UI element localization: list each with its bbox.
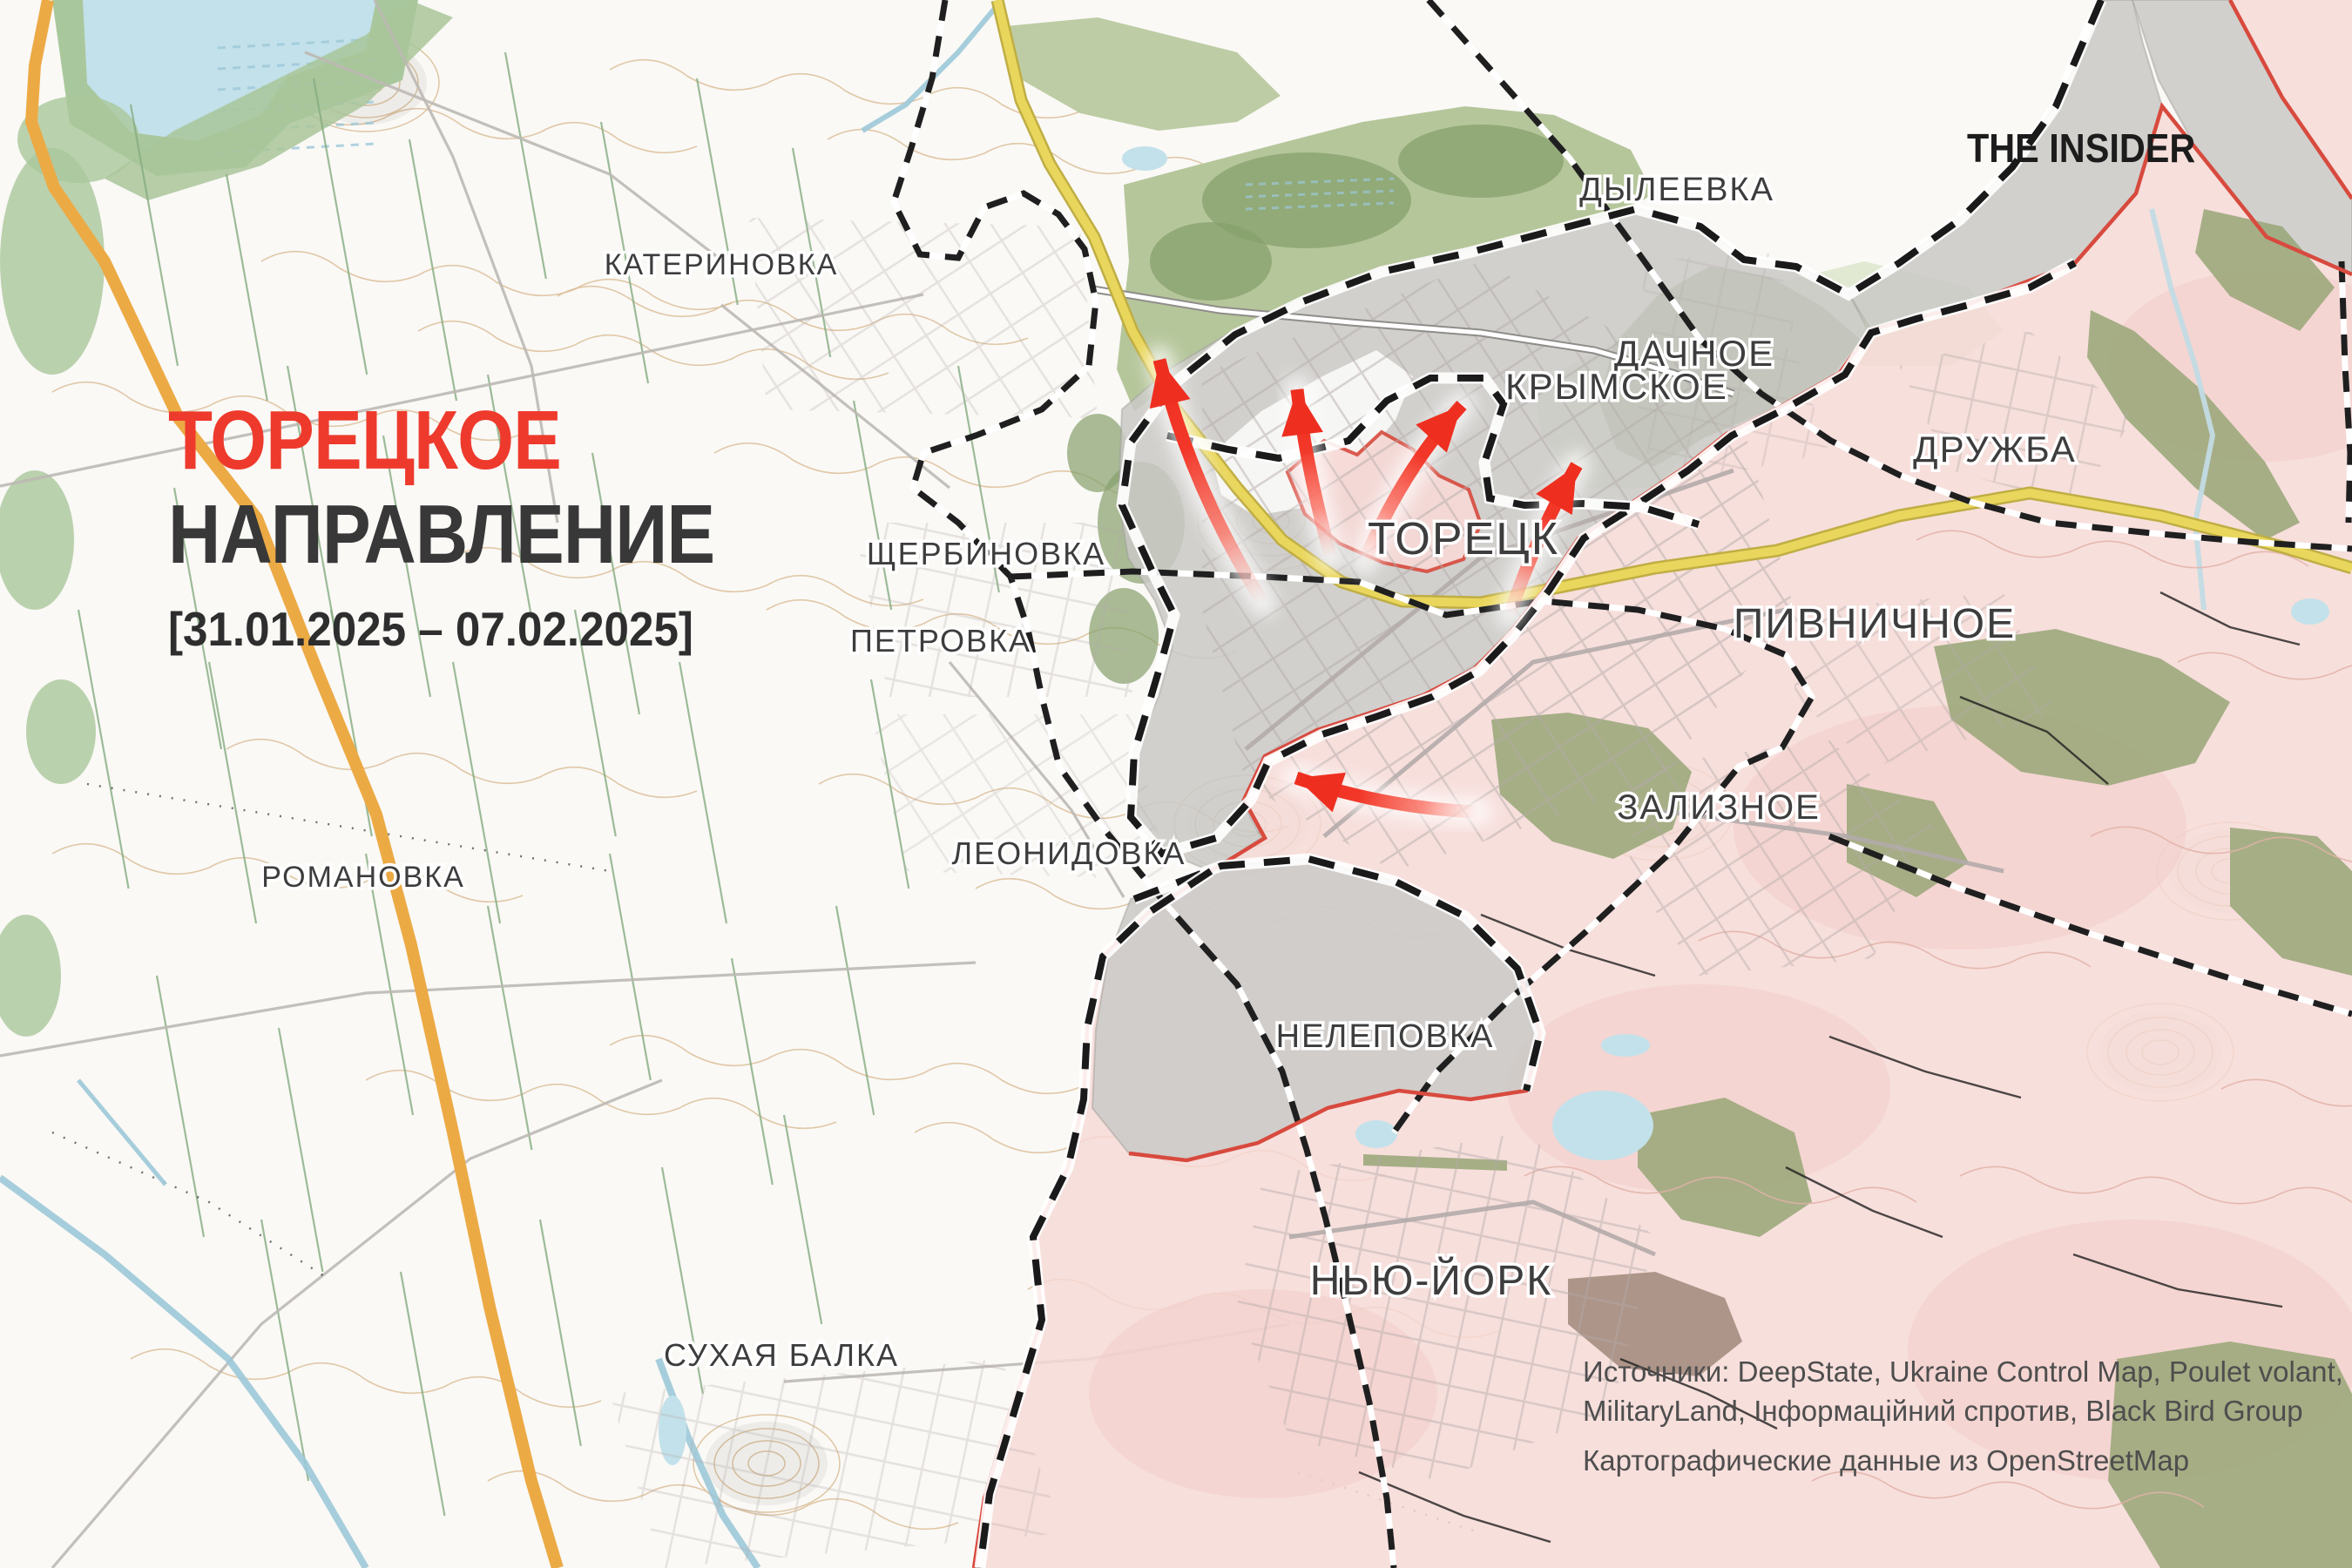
map-label-zaliznoe: ЗАЛИЗНОЕ bbox=[1617, 788, 1821, 827]
title-line-2: НАПРАВЛЕНИЕ bbox=[168, 488, 714, 582]
map-title-block: ТОРЕЦКОЕ НАПРАВЛЕНИЕ [31.01.2025 – 07.02… bbox=[168, 394, 796, 657]
map-label-shcherbinovka: ЩЕРБИНОВКА bbox=[867, 536, 1105, 571]
sources-line-3: Картографические данные из OpenStreetMap bbox=[1583, 1441, 2343, 1480]
map-label-toretsk: ТОРЕЦК bbox=[1368, 514, 1559, 564]
map-label-krymskoe: КРЫМСКОЕ bbox=[1505, 366, 1728, 407]
map-label-sukhaya-balka: СУХАЯ БАЛКА bbox=[664, 1337, 899, 1373]
map-label-romanovka: РОМАНОВКА bbox=[261, 861, 465, 894]
map-label-pivnichnoe: ПИВНИЧНОЕ bbox=[1734, 601, 2016, 647]
publisher-logo: THE INSIDER bbox=[1967, 125, 2195, 172]
map-label-leonidovka: ЛЕОНИДОВКА bbox=[952, 835, 1186, 871]
map-label-katerinovka: КАТЕРИНОВКА bbox=[605, 248, 839, 281]
map-label-nelepovka: НЕЛЕПОВКА bbox=[1276, 1018, 1495, 1055]
title-line-1: ТОРЕЦКОЕ bbox=[168, 394, 714, 488]
map-label-dyleevka: ДЫЛЕЕВКА bbox=[1579, 172, 1774, 208]
map-canvas: КАТЕРИНОВКАДЫЛЕЕВКАДАЧНОЕКРЫМСКОЕДРУЖБАТ… bbox=[0, 0, 2352, 1568]
map-screenshot: КАТЕРИНОВКАДЫЛЕЕВКАДАЧНОЕКРЫМСКОЕДРУЖБАТ… bbox=[0, 0, 2352, 1568]
sources-note: Источники: DeepState, Ukraine Control Ma… bbox=[1583, 1352, 2343, 1480]
map-label-new-york: НЬЮ-ЙОРК bbox=[1310, 1256, 1552, 1304]
title-date-range: [31.01.2025 – 07.02.2025] bbox=[168, 601, 753, 657]
sources-line-1: Источники: DeepState, Ukraine Control Ma… bbox=[1583, 1355, 2343, 1388]
sources-line-2: MilitaryLand, Інформаційний спротив, Bla… bbox=[1583, 1395, 2303, 1427]
map-label-druzhba: ДРУЖБА bbox=[1913, 429, 2077, 470]
map-label-petrovka: ПЕТРОВКА bbox=[850, 623, 1031, 659]
